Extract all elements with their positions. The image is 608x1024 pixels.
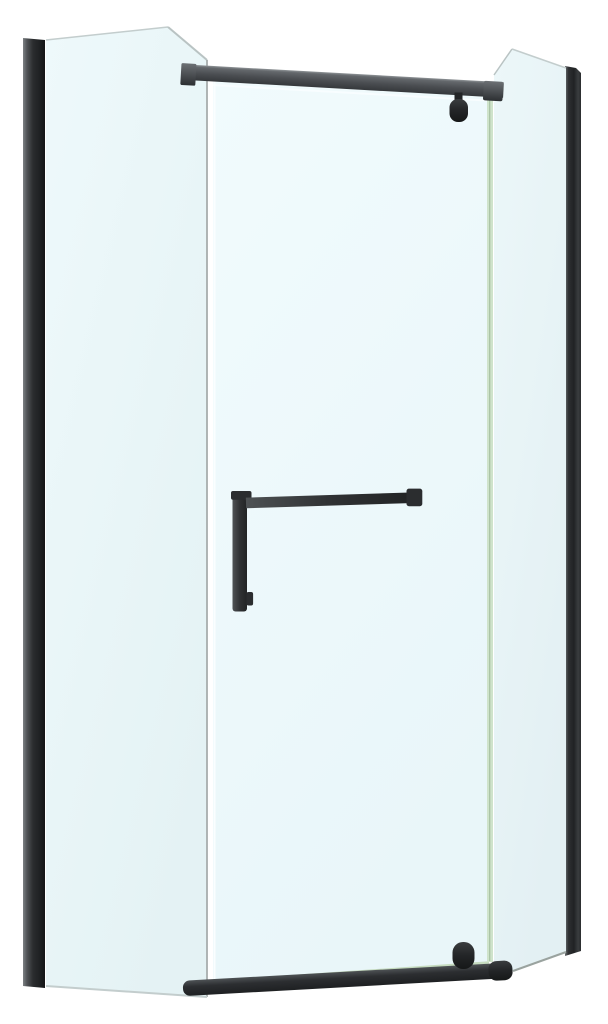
left-glass-panel bbox=[46, 27, 207, 997]
shower-enclosure-photo bbox=[0, 0, 608, 1024]
shower-enclosure-render bbox=[0, 0, 608, 1024]
handle-vertical-grip bbox=[233, 492, 248, 612]
top-bar-left-bracket bbox=[180, 63, 196, 86]
top-pivot-knob bbox=[450, 99, 469, 122]
door-glass-panel bbox=[213, 80, 490, 983]
handle-lower-mount bbox=[247, 592, 254, 606]
bottom-bar-right-bracket bbox=[488, 960, 513, 981]
bottom-pivot-knob bbox=[453, 942, 475, 969]
right-glass-panel bbox=[494, 49, 566, 971]
handle-end-cap bbox=[407, 489, 423, 507]
top-bar-right-bracket bbox=[483, 81, 504, 102]
left-wall-profile bbox=[23, 38, 45, 988]
right-wall-profile bbox=[565, 66, 581, 956]
